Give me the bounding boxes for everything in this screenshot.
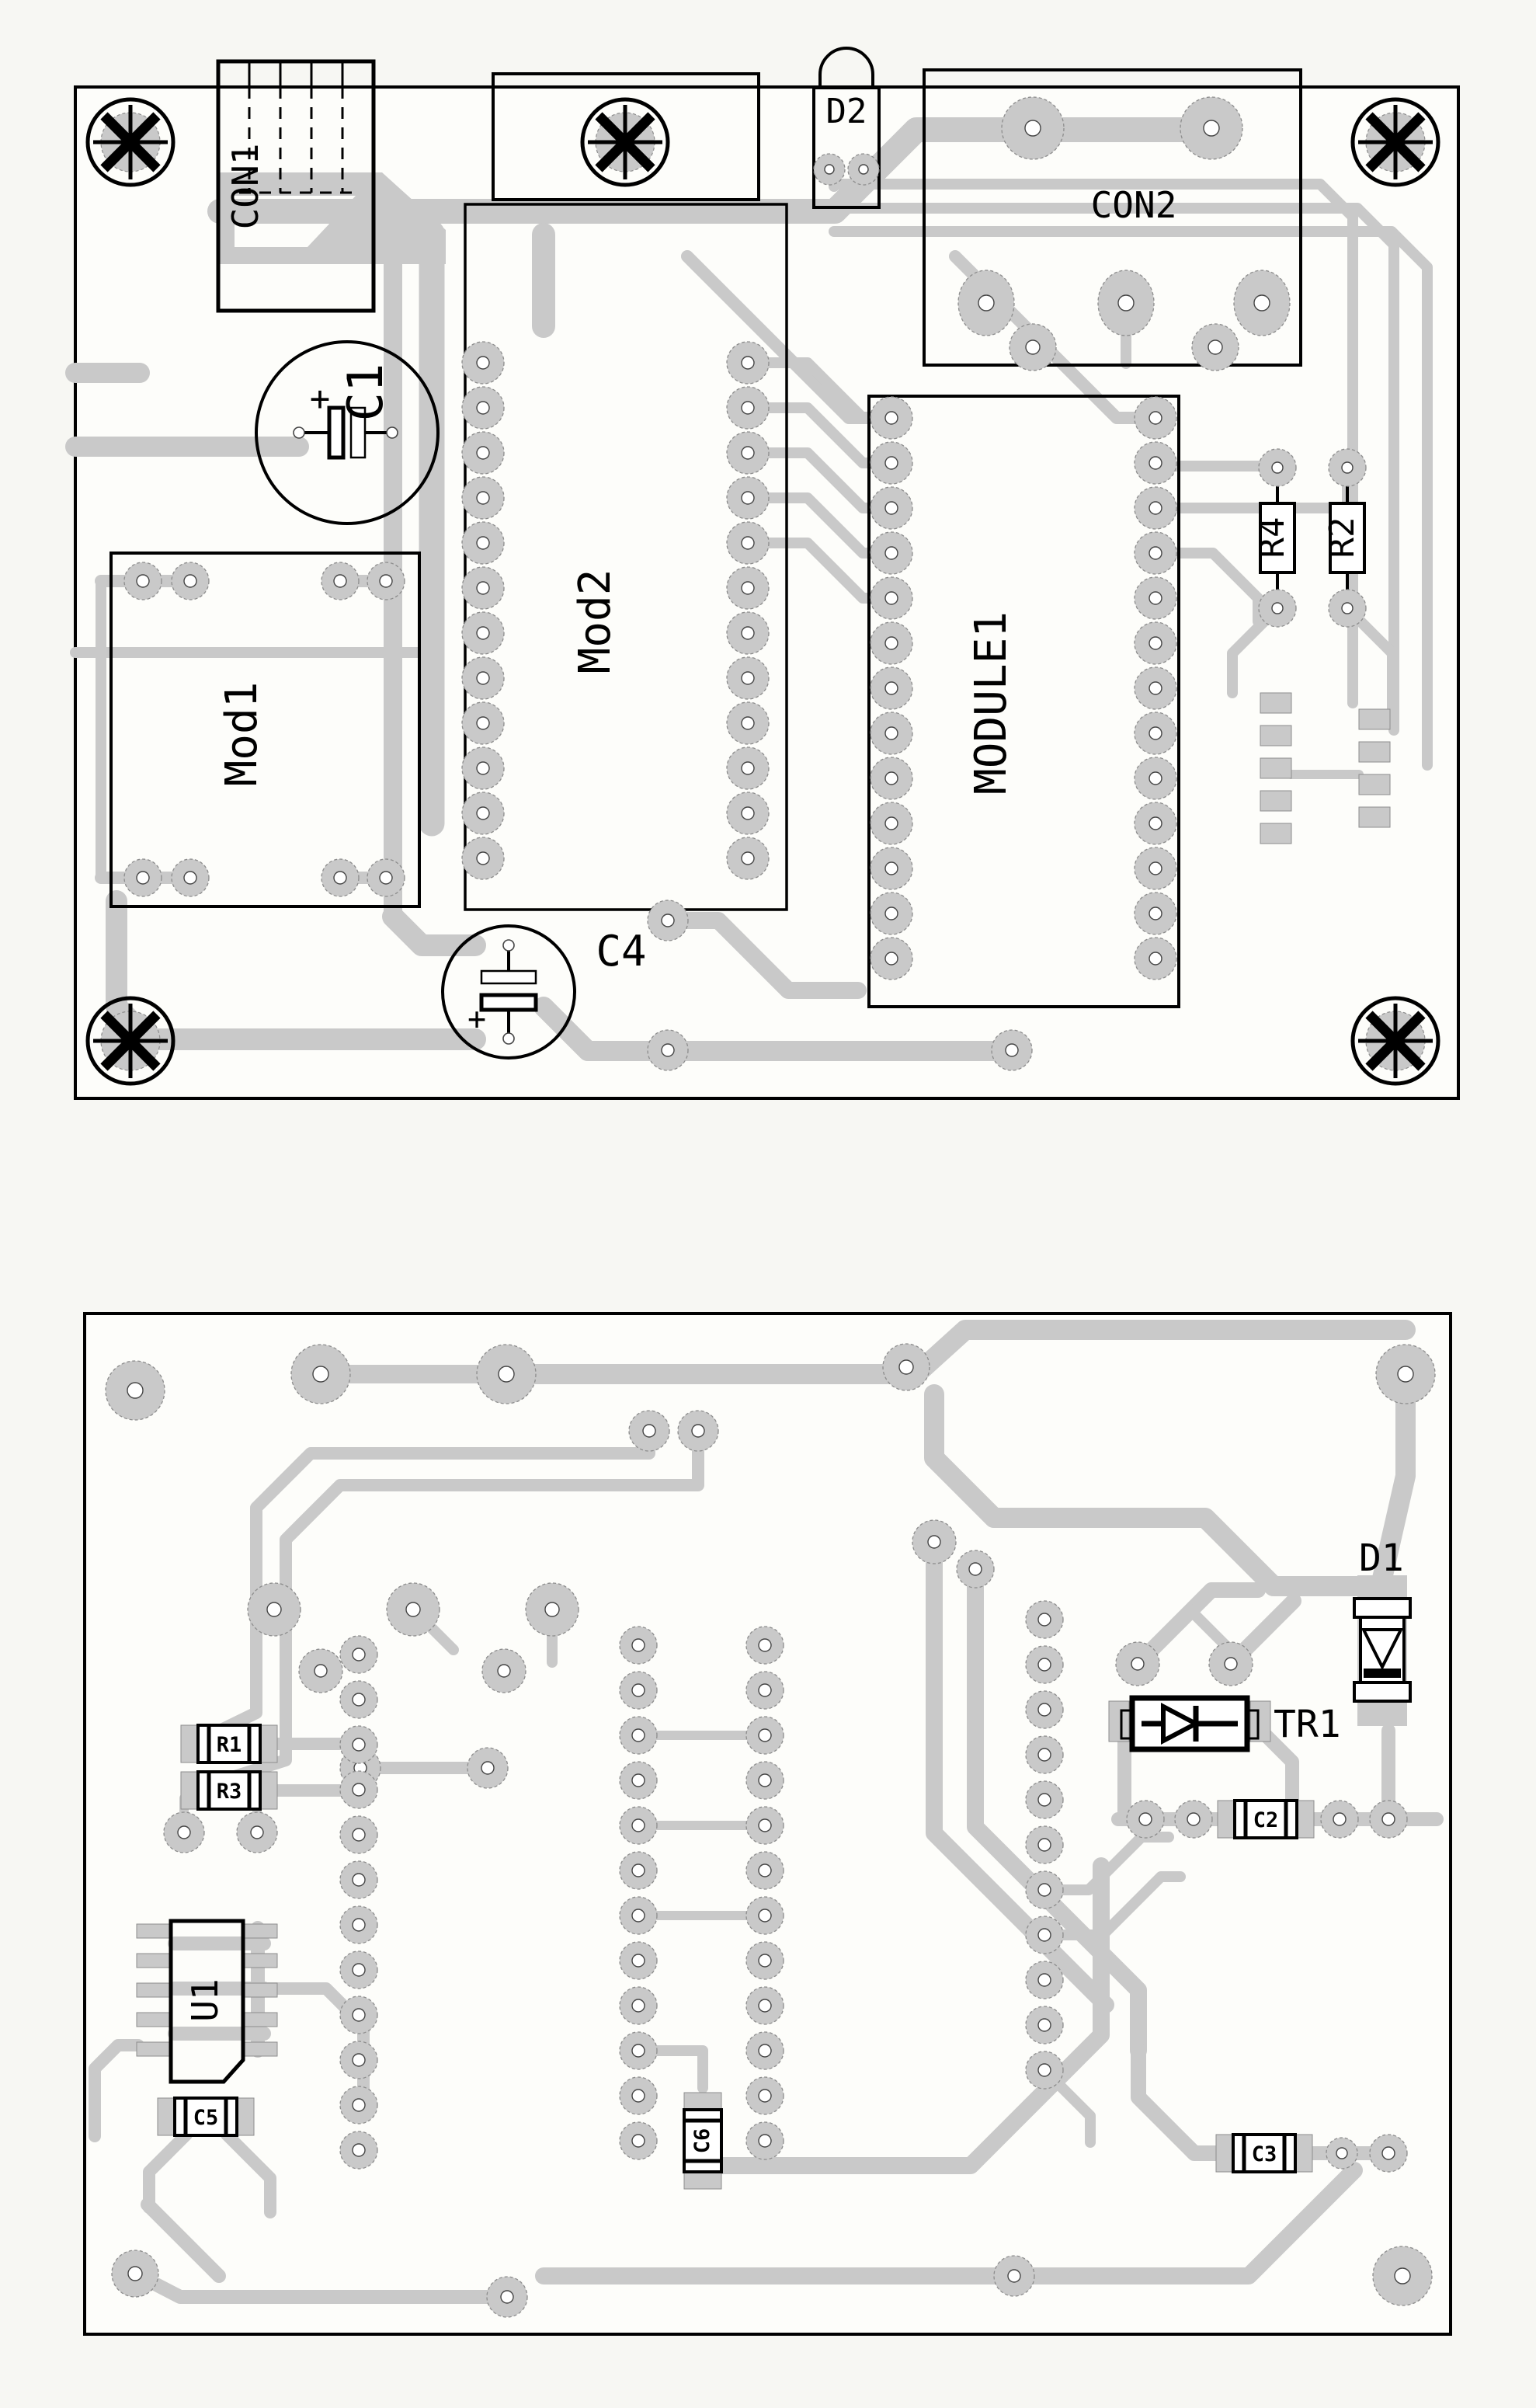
pad-hole: [632, 1684, 645, 1696]
pad-hole: [1149, 727, 1162, 739]
pad-hole: [477, 492, 489, 504]
pad-hole: [477, 537, 489, 549]
pad-hole: [251, 1826, 263, 1839]
pad-hole: [742, 672, 754, 684]
smd-pad: [243, 2042, 277, 2056]
top-board: Mod1Mod2MODULE1CON1D2CON2+C1R4R2+C4: [75, 48, 1458, 1098]
pad-hole: [742, 807, 754, 819]
pad-hole: [477, 627, 489, 639]
pad-hole: [1025, 120, 1041, 136]
pad-hole: [1149, 412, 1162, 424]
pad-hole: [477, 717, 489, 729]
pad-hole: [1139, 1813, 1152, 1825]
pad-hole: [503, 1033, 514, 1044]
pad-hole: [545, 1602, 559, 1616]
pad-hole: [503, 940, 514, 951]
d1-cathode-band: [1364, 1669, 1401, 1678]
d2-led-dome: [820, 48, 873, 88]
label-C6: C6: [690, 2128, 714, 2154]
pad-hole: [928, 1536, 940, 1548]
pad-hole: [1382, 1813, 1395, 1825]
pad-hole: [353, 1693, 365, 1706]
pad-hole: [692, 1425, 704, 1437]
mounting-hole: [88, 99, 173, 185]
pad-hole: [501, 2291, 513, 2303]
pad-hole: [1149, 952, 1162, 965]
pad-hole: [387, 427, 398, 438]
pad-hole: [1272, 603, 1283, 614]
pad-hole: [759, 1909, 771, 1922]
smd-pad: [137, 2042, 171, 2056]
pad-hole: [632, 1864, 645, 1877]
smd-pad: [137, 1924, 171, 1938]
pad-hole: [1038, 1794, 1051, 1806]
pad-hole: [1149, 907, 1162, 920]
pad-hole: [1398, 1366, 1413, 1382]
pad-hole: [477, 672, 489, 684]
label-Mod2: Mod2: [570, 569, 620, 674]
pad-hole: [632, 2090, 645, 2102]
pad-hole: [1204, 120, 1219, 136]
smd-pad: [137, 1954, 171, 1968]
pad-hole: [662, 914, 674, 927]
smd-pad: [243, 1983, 277, 1997]
d1-bottom-band: [1354, 1682, 1410, 1701]
pad-hole: [498, 1665, 510, 1677]
smd-pad: [1109, 1701, 1129, 1742]
pad-hole: [885, 907, 898, 920]
component-R1-label: R1: [217, 1733, 242, 1757]
pad-hole: [759, 1729, 771, 1742]
pad-hole: [1272, 462, 1283, 473]
pad-hole: [742, 582, 754, 594]
pad-hole: [825, 165, 834, 174]
label-C4-polarity: +: [467, 1001, 486, 1037]
smd-pad: [1260, 693, 1291, 713]
pad-hole: [477, 402, 489, 414]
pad-hole: [1208, 340, 1222, 354]
pad-hole: [885, 817, 898, 830]
label-C1: C1: [337, 364, 394, 422]
pad-hole: [885, 727, 898, 739]
pad-hole: [632, 1999, 645, 2012]
pad-hole: [885, 862, 898, 875]
pad-hole: [353, 2054, 365, 2066]
pad-hole: [1225, 1658, 1237, 1670]
bottom-board: R1R3U1C5C6TR1C2C3D1: [85, 1314, 1451, 2334]
pad-hole: [1149, 637, 1162, 649]
pad-hole: [759, 1774, 771, 1787]
mounting-hole: [582, 99, 668, 185]
pad-hole: [1149, 862, 1162, 875]
component-C3-label: C3: [1252, 2142, 1277, 2166]
pad-hole: [353, 1964, 365, 1976]
pad-hole: [742, 537, 754, 549]
component-C2-label: C2: [1253, 1808, 1279, 1832]
d1-top-band: [1354, 1599, 1410, 1617]
pad-hole: [899, 1360, 913, 1374]
smd-pad: [1359, 807, 1390, 827]
pcb-drawing: Mod1Mod2MODULE1CON1D2CON2+C1R4R2+C4 R1R3…: [0, 0, 1536, 2408]
pad-hole: [885, 952, 898, 965]
pad-hole: [1038, 1703, 1051, 1716]
smd-pad: [243, 2013, 277, 2027]
pad-hole: [1038, 2019, 1051, 2031]
pad-hole: [178, 1826, 190, 1839]
pad-hole: [759, 2044, 771, 2057]
pad-hole: [1254, 295, 1270, 311]
pad-hole: [1038, 1884, 1051, 1896]
pad-hole: [885, 637, 898, 649]
pad-hole: [477, 357, 489, 369]
pad-hole: [759, 2135, 771, 2147]
pad-hole: [353, 1648, 365, 1661]
pad-hole: [353, 1829, 365, 1841]
pad-hole: [481, 1762, 494, 1774]
pad-hole: [1336, 2148, 1347, 2159]
pad-hole: [885, 547, 898, 559]
label-TR1: TR1: [1274, 1703, 1341, 1746]
pad-hole: [1395, 2268, 1410, 2284]
pad-hole: [1187, 1813, 1200, 1825]
smd-pad: [1359, 742, 1390, 762]
pad-hole: [137, 575, 149, 587]
pad-hole: [184, 575, 196, 587]
pad-hole: [742, 627, 754, 639]
pad-hole: [1149, 682, 1162, 694]
pad-hole: [128, 2267, 142, 2281]
pad-hole: [632, 1774, 645, 1787]
pad-hole: [1038, 1658, 1051, 1671]
pad-hole: [137, 872, 149, 884]
pad-hole: [1149, 817, 1162, 830]
pad-hole: [353, 2099, 365, 2111]
pad-hole: [885, 412, 898, 424]
pad-hole: [759, 1639, 771, 1651]
pad-hole: [477, 852, 489, 865]
pad-hole: [184, 872, 196, 884]
pad-hole: [1008, 2270, 1020, 2282]
pad-hole: [759, 1684, 771, 1696]
pad-hole: [499, 1366, 514, 1382]
pad-hole: [759, 1999, 771, 2012]
label-C1-polarity: +: [310, 379, 331, 419]
pad-hole: [643, 1425, 655, 1437]
pad-hole: [1038, 1839, 1051, 1851]
smd-pad: [137, 1983, 171, 1997]
label-D1: D1: [1359, 1536, 1404, 1580]
pad-hole: [477, 762, 489, 774]
pad-hole: [1342, 603, 1353, 614]
pad-hole: [632, 1639, 645, 1651]
pad-hole: [127, 1383, 143, 1398]
mounting-hole: [1353, 99, 1438, 185]
label-C4: C4: [596, 927, 646, 976]
pad-hole: [742, 402, 754, 414]
pad-hole: [632, 2044, 645, 2057]
c4-plate-neg: [481, 995, 536, 1010]
smd-pad: [1359, 774, 1390, 795]
pad-hole: [353, 2144, 365, 2156]
pad-hole: [1006, 1044, 1018, 1056]
label-D2: D2: [826, 92, 867, 131]
smd-pad: [1250, 1701, 1270, 1742]
pad-hole: [632, 2135, 645, 2147]
label-MODULE1: MODULE1: [966, 611, 1016, 795]
pad-hole: [1038, 1974, 1051, 1986]
pad-hole: [1149, 547, 1162, 559]
pad-hole: [632, 1954, 645, 1967]
pad-hole: [1038, 1929, 1051, 1941]
pad-hole: [353, 2009, 365, 2021]
label-U1: U1: [184, 1978, 226, 2021]
pad-hole: [477, 447, 489, 459]
pad-hole: [742, 762, 754, 774]
pad-hole: [477, 582, 489, 594]
pad-hole: [313, 1366, 328, 1382]
pad-hole: [353, 1738, 365, 1751]
pad-hole: [1026, 340, 1040, 354]
pad-hole: [885, 682, 898, 694]
pad-hole: [759, 1819, 771, 1832]
pad-hole: [978, 295, 994, 311]
pad-hole: [477, 807, 489, 819]
label-R2: R2: [1322, 517, 1362, 559]
label-CON1: CON1: [224, 144, 266, 230]
pad-hole: [334, 872, 346, 884]
pad-hole: [1149, 502, 1162, 514]
pad-hole: [632, 1819, 645, 1832]
smd-pad: [1359, 709, 1390, 729]
con1-pins: [249, 61, 342, 87]
pad-hole: [1118, 295, 1134, 311]
smd-pad: [1260, 758, 1291, 778]
pad-hole: [969, 1563, 982, 1575]
pad-hole: [662, 1044, 674, 1056]
mounting-hole: [88, 998, 173, 1084]
smd-pad: [1260, 791, 1291, 811]
pad-hole: [1038, 1613, 1051, 1626]
smd-pad: [1260, 726, 1291, 746]
pad-hole: [885, 457, 898, 469]
mounting-hole: [1353, 998, 1438, 1084]
pad-hole: [742, 447, 754, 459]
smd-pad: [1260, 823, 1291, 844]
pad-hole: [859, 165, 868, 174]
pad-hole: [742, 717, 754, 729]
smd-pad: [243, 1924, 277, 1938]
label-CON2: CON2: [1091, 184, 1177, 226]
pad-hole: [885, 772, 898, 785]
pad-hole: [1149, 457, 1162, 469]
pad-hole: [742, 357, 754, 369]
pad-hole: [294, 427, 304, 438]
pad-hole: [1038, 2064, 1051, 2076]
pcb-layout-sheet: Mod1Mod2MODULE1CON1D2CON2+C1R4R2+C4 R1R3…: [0, 0, 1536, 2408]
label-R4: R4: [1253, 517, 1292, 559]
component-C5-label: C5: [193, 2106, 219, 2130]
component-R3-label: R3: [217, 1780, 242, 1804]
pad-hole: [885, 502, 898, 514]
pad-hole: [1333, 1813, 1346, 1825]
pad-hole: [1342, 462, 1353, 473]
pad-hole: [1038, 1749, 1051, 1761]
pad-hole: [1149, 772, 1162, 785]
pad-hole: [1149, 592, 1162, 604]
pad-hole: [380, 575, 392, 587]
pad-hole: [380, 872, 392, 884]
pad-hole: [885, 592, 898, 604]
pad-hole: [1382, 2147, 1395, 2159]
pad-hole: [353, 1874, 365, 1886]
pad-hole: [334, 575, 346, 587]
pad-hole: [632, 1909, 645, 1922]
pad-hole: [353, 1783, 365, 1796]
pad-hole: [1131, 1658, 1144, 1670]
pad-hole: [759, 1864, 771, 1877]
pad-hole: [742, 852, 754, 865]
pad-hole: [314, 1665, 327, 1677]
label-Mod1: Mod1: [217, 682, 267, 787]
smd-pad: [243, 1954, 277, 1968]
pad-hole: [267, 1602, 281, 1616]
pad-hole: [742, 492, 754, 504]
pad-hole: [406, 1602, 420, 1616]
pad-hole: [759, 1954, 771, 1967]
pad-hole: [759, 2090, 771, 2102]
pad-hole: [632, 1729, 645, 1742]
smd-pad: [137, 2013, 171, 2027]
c4-plate-pos: [481, 971, 536, 983]
pad-hole: [353, 1919, 365, 1931]
